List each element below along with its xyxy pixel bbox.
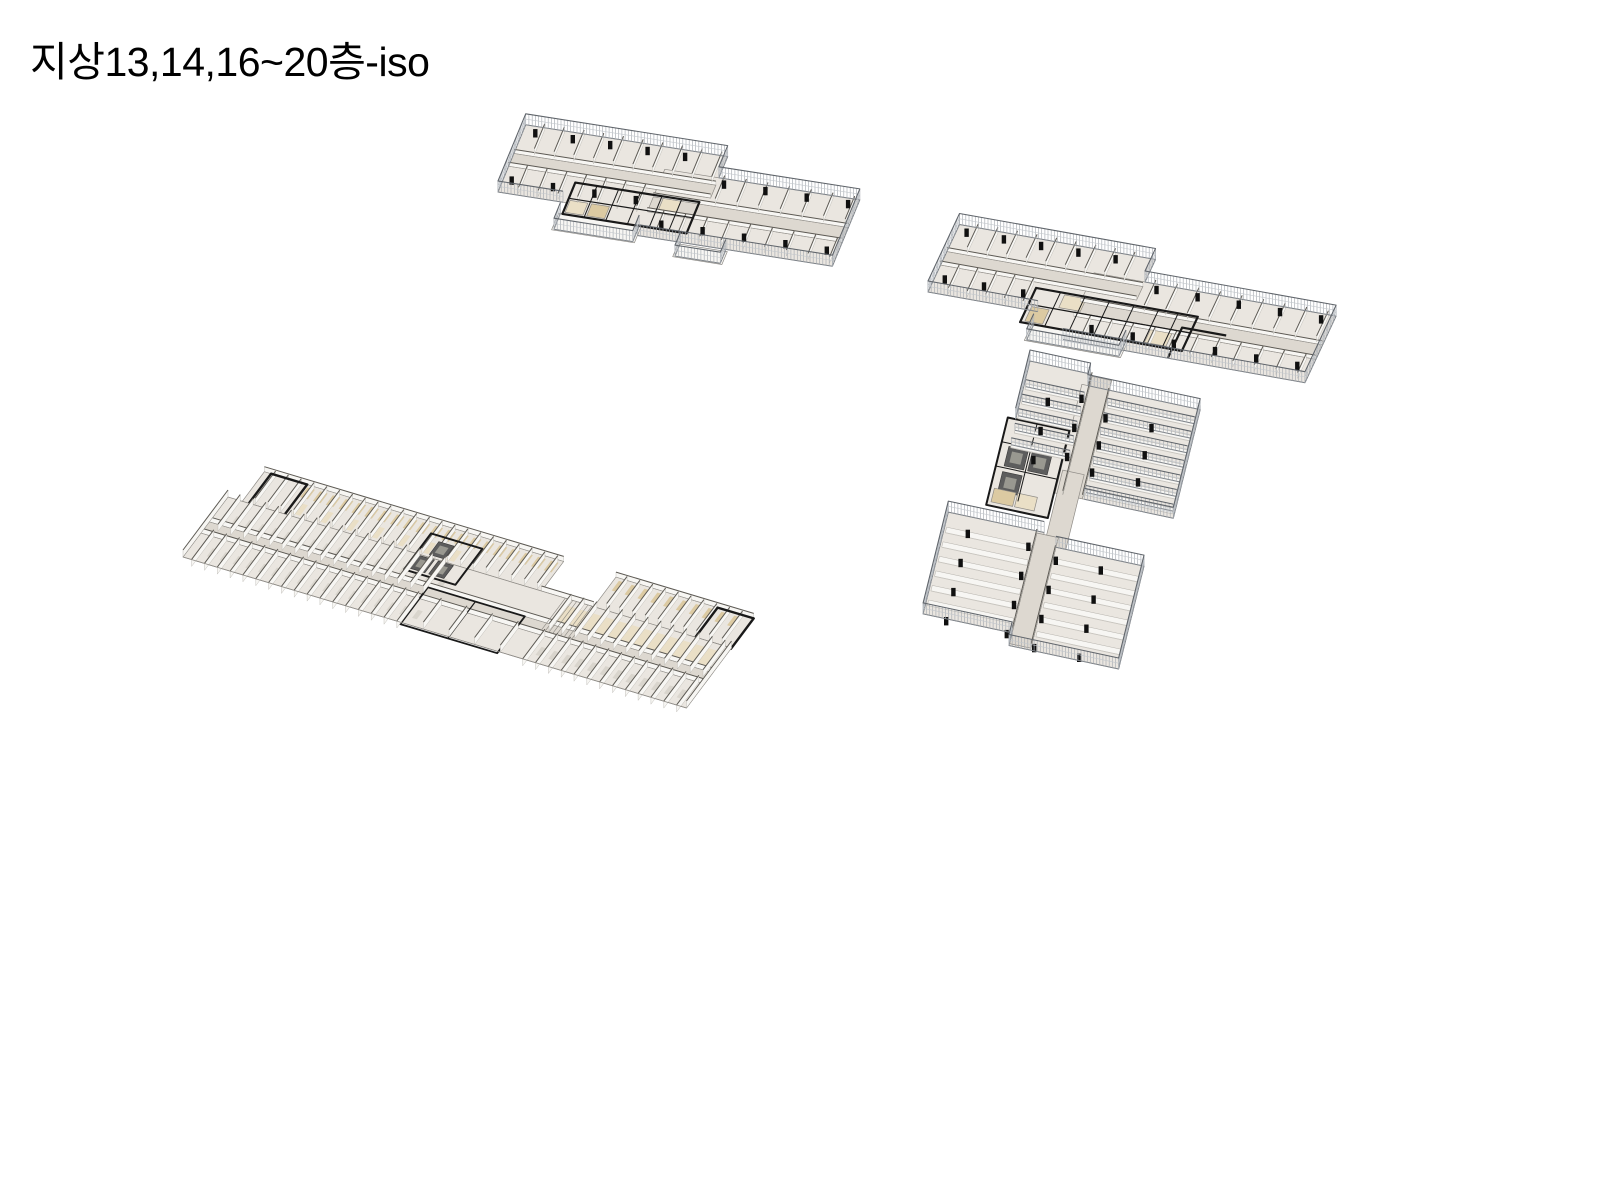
- slide-page: 지상13,14,16~20층-iso: [0, 0, 1600, 1200]
- floor-plan-bottom-left: [183, 467, 754, 712]
- floor-plans-canvas: [0, 0, 1600, 1200]
- floor-plan-middle-right: [923, 350, 1200, 669]
- floor-plan-top-right: [928, 214, 1336, 383]
- floor-plan-top-center: [498, 114, 860, 266]
